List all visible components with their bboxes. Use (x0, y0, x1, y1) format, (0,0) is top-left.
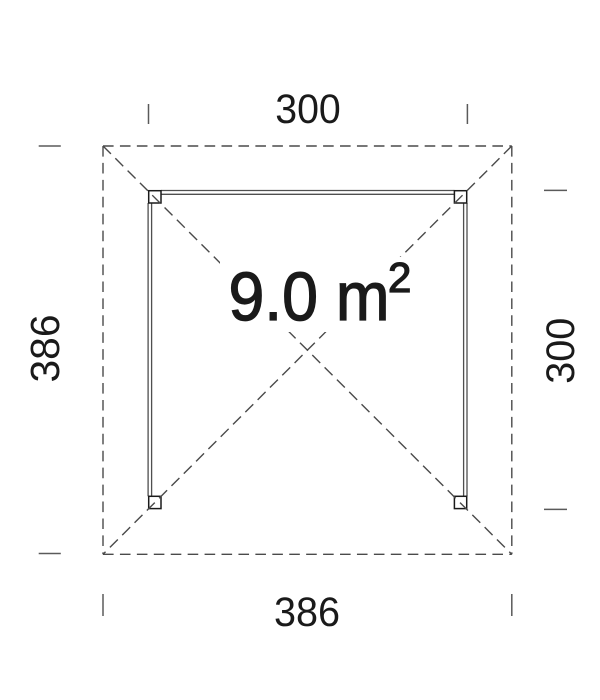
svg-text:9.0 m: 9.0 m (228, 258, 389, 335)
svg-text:300: 300 (539, 318, 583, 384)
svg-text:300: 300 (275, 86, 341, 132)
svg-text:386: 386 (274, 589, 340, 635)
svg-text:2: 2 (388, 254, 411, 301)
svg-text:386: 386 (22, 315, 68, 383)
